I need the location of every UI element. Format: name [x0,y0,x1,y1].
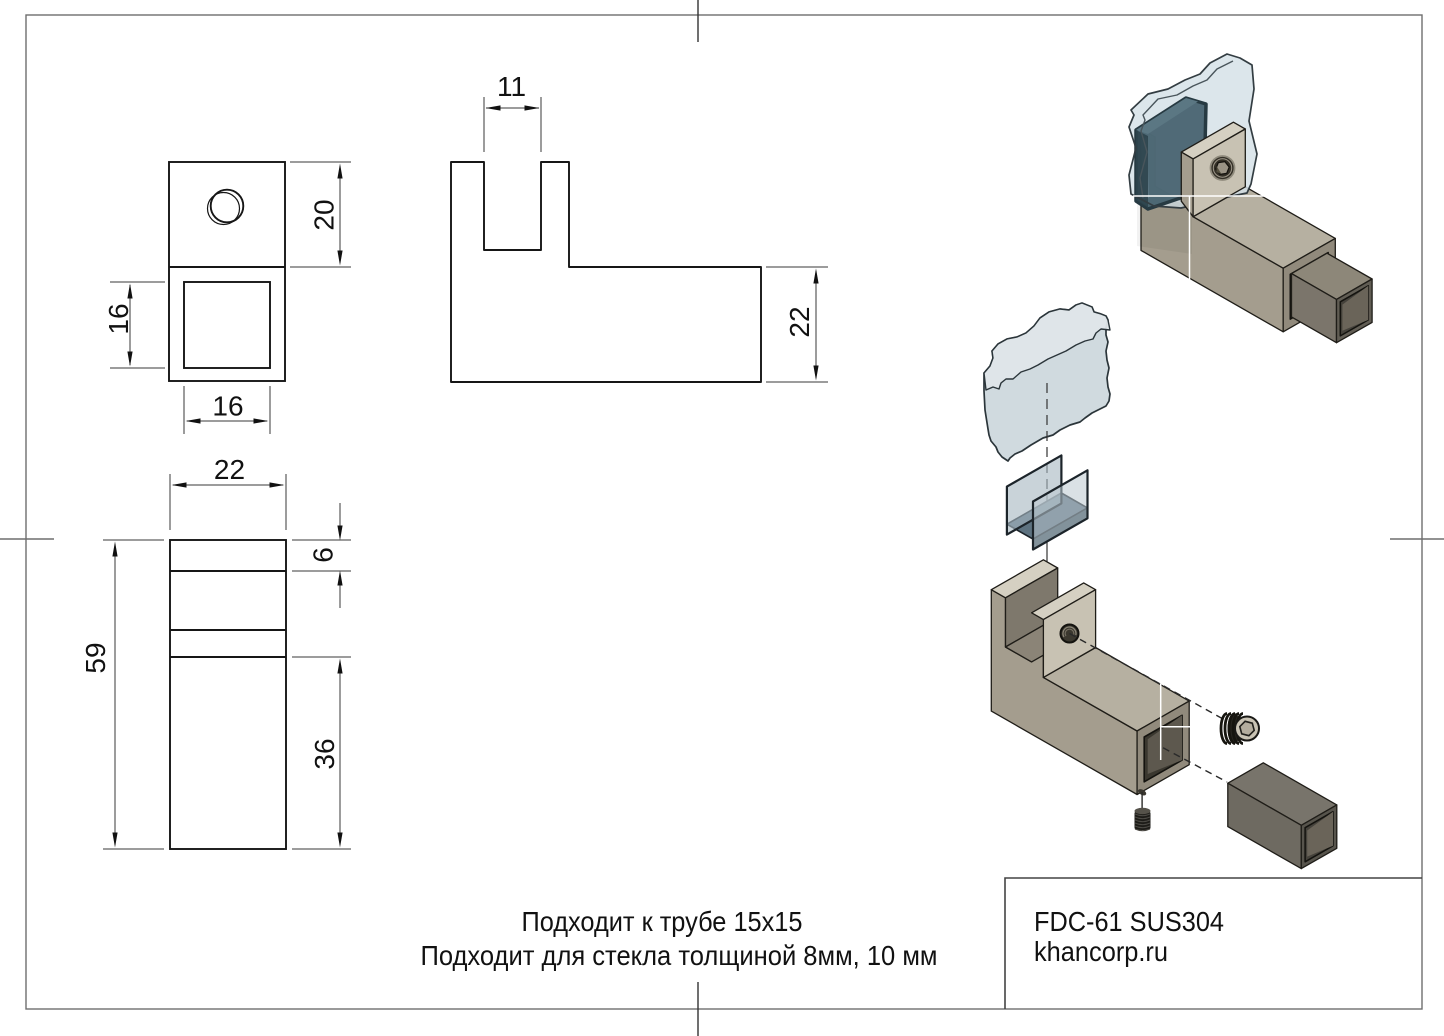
svg-text:59: 59 [80,642,111,673]
svg-text:16: 16 [103,303,134,334]
svg-text:11: 11 [497,71,526,102]
svg-text:Подходит для стекла толщиной 8: Подходит для стекла толщиной 8мм, 10 мм [421,940,938,971]
svg-text:20: 20 [309,199,340,230]
svg-text:22: 22 [784,306,815,337]
svg-text:22: 22 [214,454,245,485]
svg-text:6: 6 [308,547,339,563]
svg-text:16: 16 [212,391,243,422]
svg-text:khancorp.ru: khancorp.ru [1034,936,1168,967]
svg-text:Подходит к трубе 15x15: Подходит к трубе 15x15 [522,906,803,937]
svg-text:36: 36 [309,738,340,769]
svg-text:FDC-61 SUS304: FDC-61 SUS304 [1034,906,1224,937]
